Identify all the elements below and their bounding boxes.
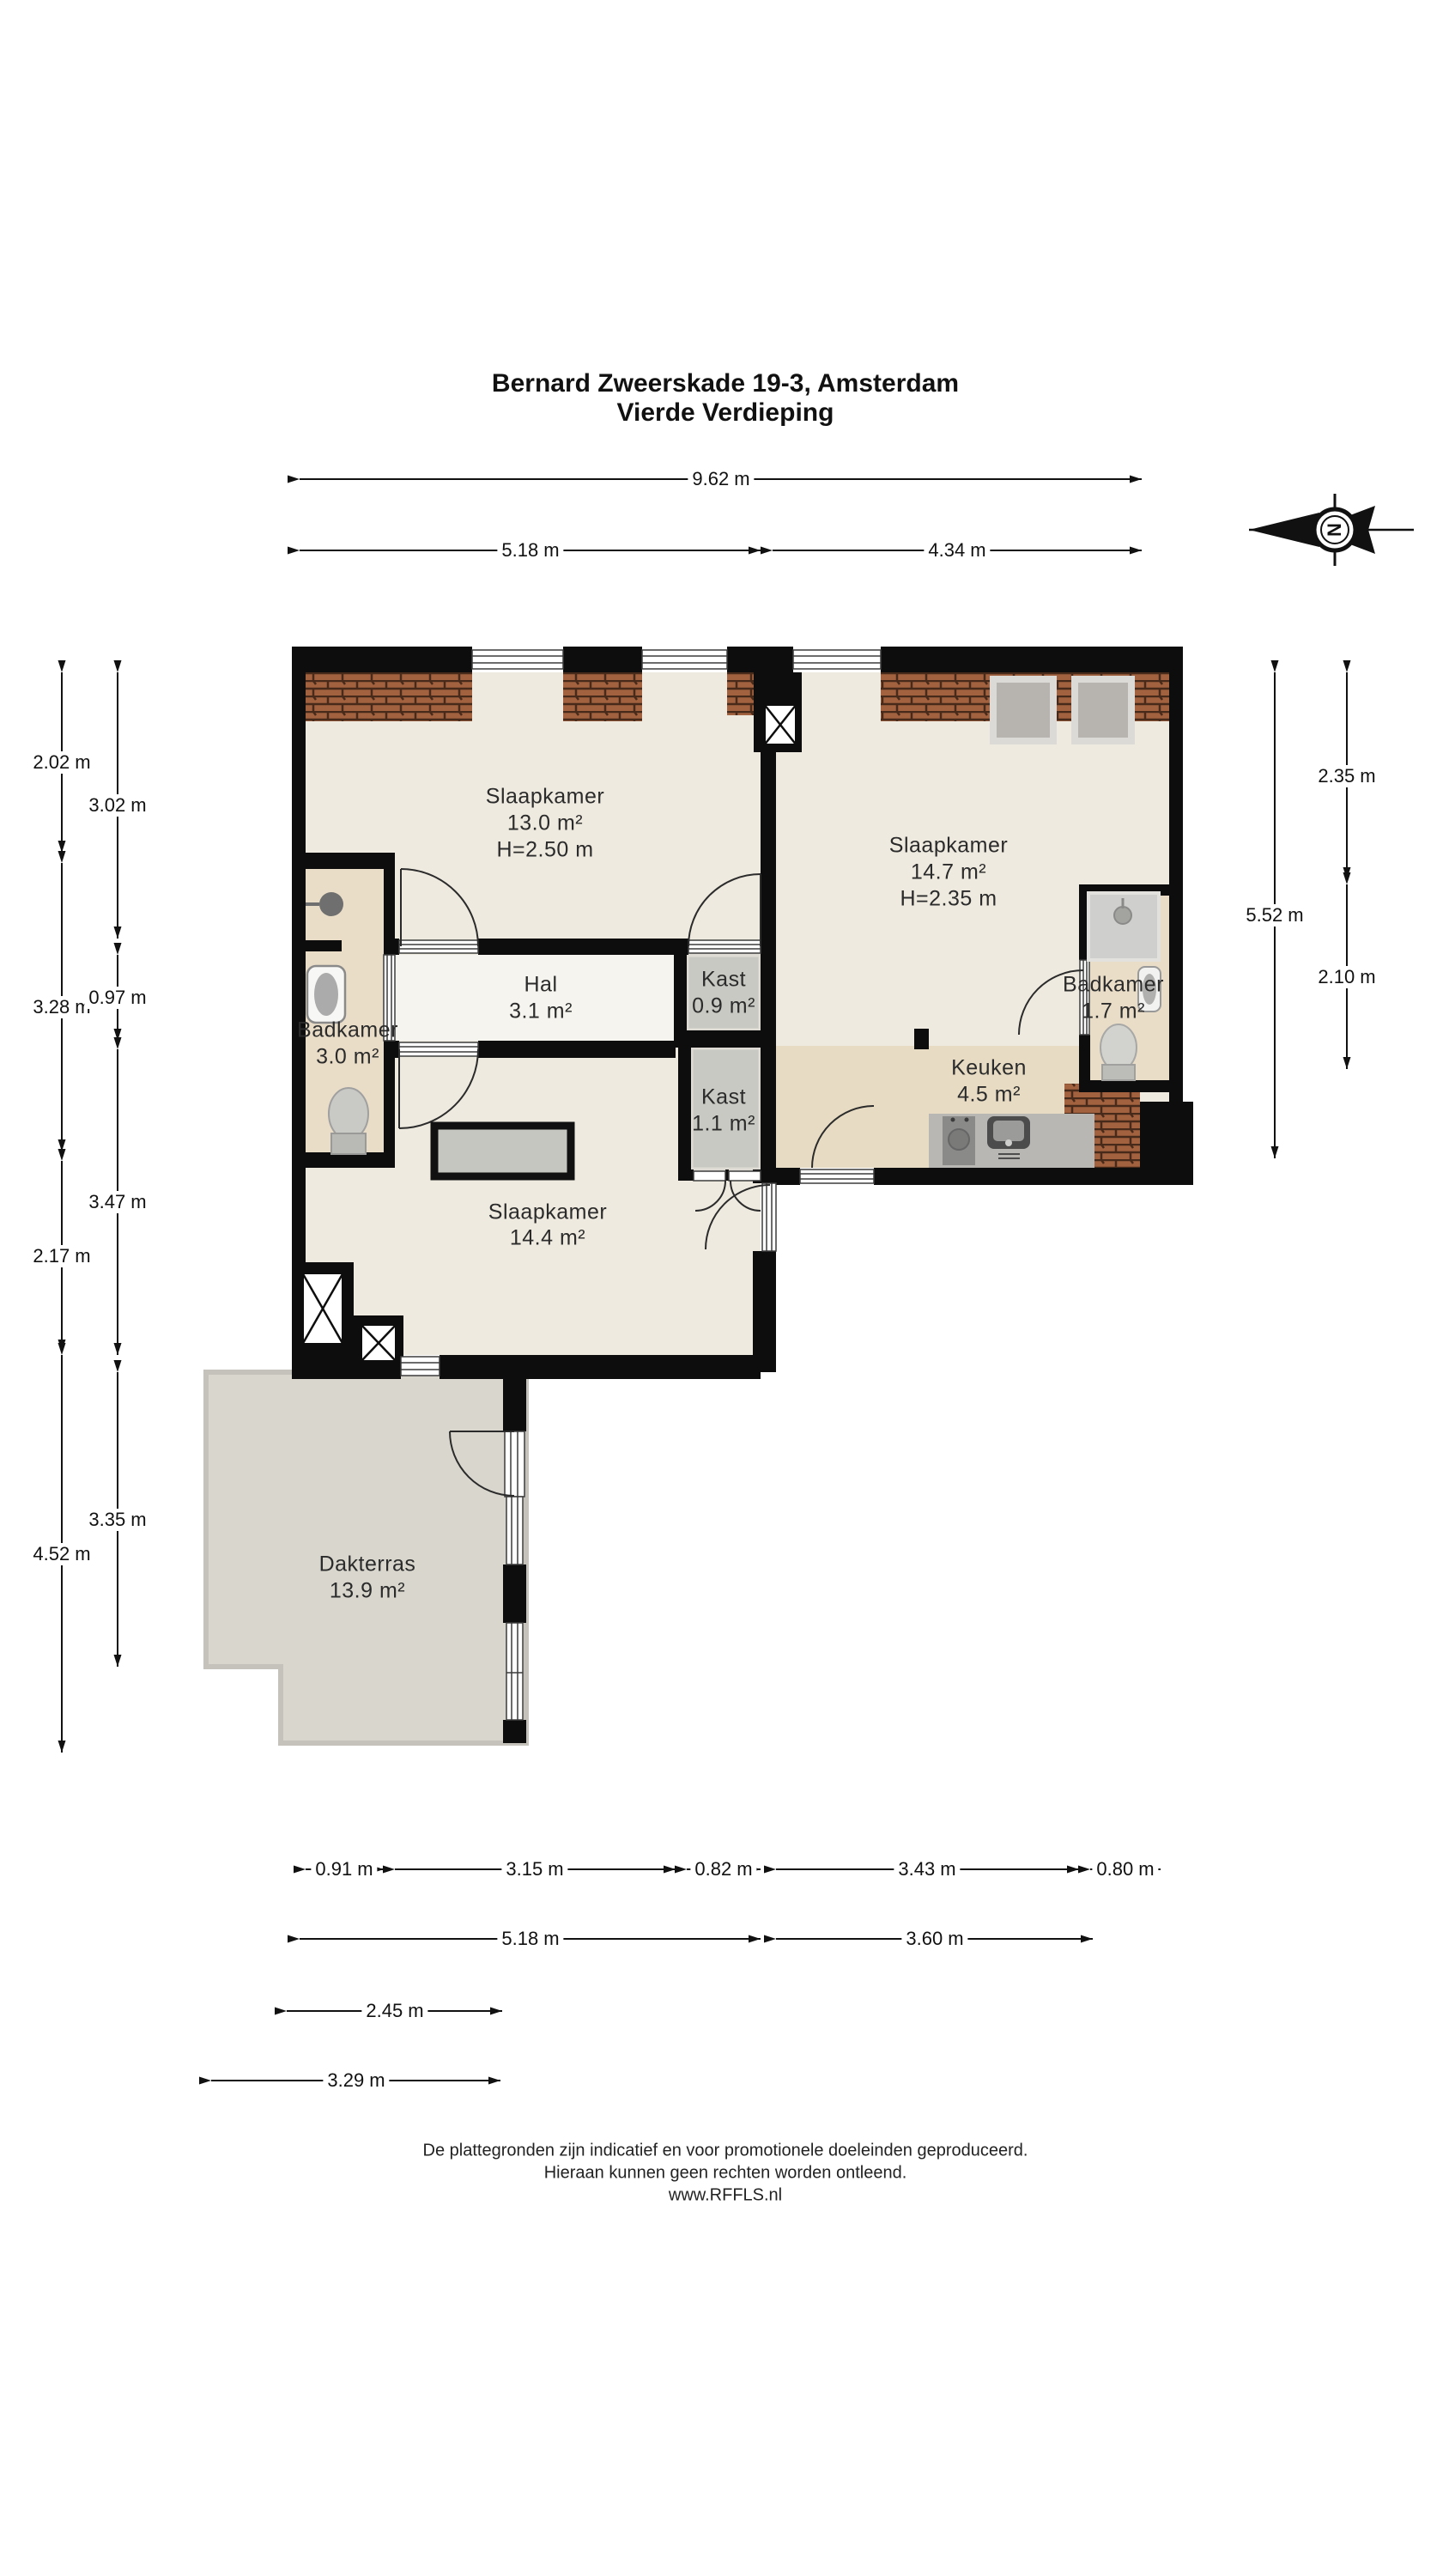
room-area-keuken: 4.5 m²: [957, 1083, 1021, 1108]
room-area-kast-11: 1.1 m²: [692, 1112, 755, 1137]
room-label-dakterras: Dakterras: [319, 1552, 416, 1577]
dim-left-inner-2: 0.97 m: [84, 987, 150, 1009]
dim-top-left: 5.18 m: [497, 539, 563, 562]
toilet-icon: [1100, 1024, 1137, 1071]
dim-bottom1-3: 0.82 m: [690, 1858, 756, 1880]
room-area-slaapkamer-147: 14.7 m²: [911, 860, 986, 885]
room-label-kast-09: Kast: [701, 968, 746, 993]
toilet-icon: [329, 1088, 368, 1139]
dim-left-inner-3: 3.47 m: [84, 1191, 150, 1213]
room-area-dakterras: 13.9 m²: [330, 1579, 405, 1604]
dim-left-inner-4: 3.35 m: [84, 1509, 150, 1531]
dim-top-total: 9.62 m: [688, 468, 754, 490]
room-label-slaapkamer-147: Slaapkamer: [889, 834, 1008, 859]
kitchen-fixtures: [929, 1114, 1094, 1168]
website-label: www.RFFLS.nl: [669, 2186, 782, 2206]
dim-left-inner-1: 3.02 m: [84, 794, 150, 817]
dim-left-outer-4: 4.52 m: [28, 1543, 94, 1565]
dim-bottom3: 2.45 m: [361, 2000, 427, 2022]
dim-right-total: 5.52 m: [1241, 904, 1307, 927]
room-area-slaapkamer-13: 13.0 m²: [507, 811, 583, 836]
dim-bottom2-2: 3.60 m: [901, 1928, 967, 1950]
room-area-badkamer-30: 3.0 m²: [316, 1045, 379, 1070]
dim-bottom1-5: 0.80 m: [1092, 1858, 1158, 1880]
room-label-badkamer-17: Badkamer: [1063, 973, 1164, 998]
disclaimer-line-2: Hieraan kunnen geen rechten worden ontle…: [544, 2164, 907, 2184]
dim-bottom1-1: 0.91 m: [311, 1858, 377, 1880]
room-ceiling-slaapkamer-147: H=2.35 m: [900, 887, 997, 912]
dim-right-inner-2: 2.10 m: [1313, 966, 1379, 988]
dim-left-outer-1: 2.02 m: [28, 751, 94, 774]
room-label-badkamer-30: Badkamer: [297, 1018, 398, 1043]
room-area-hal: 3.1 m²: [509, 999, 573, 1024]
room-ceiling-slaapkamer-13: H=2.50 m: [496, 838, 593, 863]
room-area-kast-09: 0.9 m²: [692, 994, 755, 1019]
page-subtitle: Vierde Verdieping: [617, 398, 834, 428]
room-area-slaapkamer-144: 14.4 m²: [510, 1226, 585, 1251]
dim-bottom1-4: 3.43 m: [894, 1858, 960, 1880]
roof-window-icon: [434, 1126, 571, 1176]
mirror-icon: [319, 892, 343, 916]
shower-head-icon: [1114, 907, 1131, 924]
dim-bottom1-2: 3.15 m: [501, 1858, 567, 1880]
dim-left-outer-3: 2.17 m: [28, 1245, 94, 1267]
compass-north-label: N: [1324, 523, 1346, 537]
dim-bottom2-1: 5.18 m: [497, 1928, 563, 1950]
dim-bottom4: 3.29 m: [323, 2069, 389, 2092]
floorplan-page: Bernard Zweerskade 19-3, Amsterdam Vierd…: [0, 0, 1449, 2576]
dim-right-inner-1: 2.35 m: [1313, 765, 1379, 787]
room-label-hal: Hal: [524, 973, 557, 998]
dim-top-right: 4.34 m: [924, 539, 990, 562]
room-label-slaapkamer-13: Slaapkamer: [486, 785, 604, 810]
room-label-keuken: Keuken: [951, 1056, 1027, 1081]
room-label-slaapkamer-144: Slaapkamer: [488, 1200, 607, 1225]
room-label-kast-11: Kast: [701, 1085, 746, 1110]
room-area-badkamer-17: 1.7 m²: [1082, 999, 1145, 1024]
page-title: Bernard Zweerskade 19-3, Amsterdam: [492, 369, 959, 398]
disclaimer-line-1: De plattegronden zijn indicatief en voor…: [423, 2142, 1028, 2161]
